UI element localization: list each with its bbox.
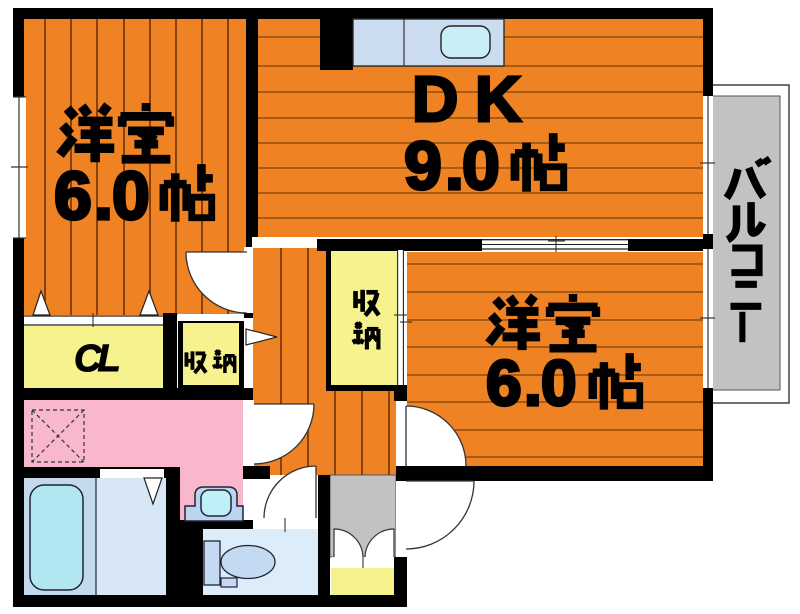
svg-text:K: K bbox=[475, 63, 521, 135]
svg-text:0: 0 bbox=[112, 158, 150, 234]
svg-text:D: D bbox=[412, 63, 458, 135]
svg-text:0: 0 bbox=[462, 128, 500, 204]
svg-text:9: 9 bbox=[404, 128, 442, 204]
svg-text:.: . bbox=[524, 347, 542, 419]
svg-text:CL: CL bbox=[74, 338, 118, 380]
svg-text:6: 6 bbox=[486, 347, 522, 419]
svg-text:.: . bbox=[94, 158, 113, 234]
svg-text:6: 6 bbox=[54, 158, 92, 234]
svg-text:0: 0 bbox=[541, 347, 577, 419]
